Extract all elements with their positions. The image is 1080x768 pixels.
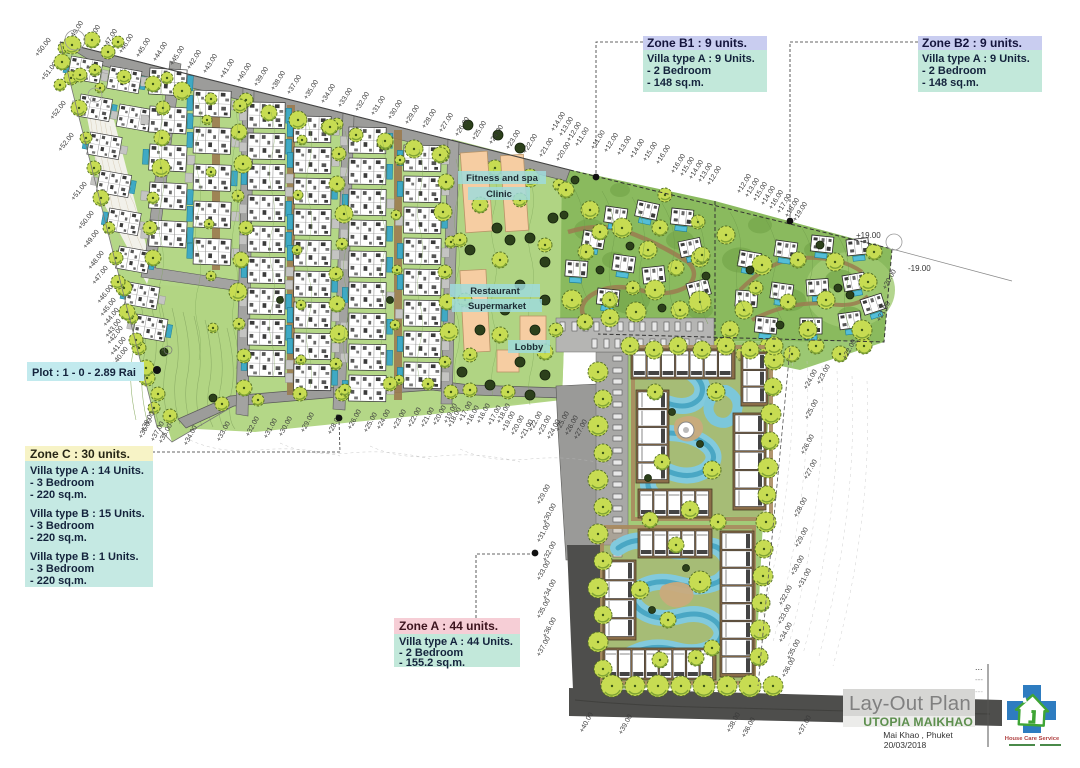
svg-text:- 220 sq.m.: - 220 sq.m. — [30, 489, 87, 501]
svg-text:- 148 sq.m.: - 148 sq.m. — [647, 77, 704, 89]
svg-text:Villa type A : 9 Units.: Villa type A : 9 Units. — [922, 53, 1030, 65]
svg-text:- 2 Bedroom: - 2 Bedroom — [647, 65, 711, 77]
svg-text:UTOPIA MAIKHAO: UTOPIA MAIKHAO — [863, 715, 973, 729]
svg-text:-19.00: -19.00 — [908, 264, 931, 273]
svg-text:- 3 Bedroom: - 3 Bedroom — [30, 477, 94, 489]
svg-text:Villa type B : 1 Units.: Villa type B : 1 Units. — [30, 551, 139, 563]
svg-text:Zone A : 44 units.: Zone A : 44 units. — [399, 619, 498, 633]
svg-text:- 3 Bedroom: - 3 Bedroom — [30, 520, 94, 532]
svg-text:Villa type B : 15 Units.: Villa type B : 15 Units. — [30, 508, 145, 520]
svg-text:Fitness and spa: Fitness and spa — [466, 173, 539, 184]
svg-text:Plot : 1 - 0 - 2.89 Rai: Plot : 1 - 0 - 2.89 Rai — [32, 367, 136, 379]
svg-text:Restaurant: Restaurant — [470, 286, 520, 297]
svg-text:- 148 sq.m.: - 148 sq.m. — [922, 77, 979, 89]
svg-text:Supermarket: Supermarket — [468, 301, 527, 312]
svg-text:Lobby: Lobby — [515, 342, 544, 353]
svg-text:- 155.2 sq.m.: - 155.2 sq.m. — [399, 657, 465, 669]
svg-text:- 220 sq.m.: - 220 sq.m. — [30, 532, 87, 544]
svg-text:- 220 sq.m.: - 220 sq.m. — [30, 575, 87, 587]
svg-text:Zone B2 : 9 units.: Zone B2 : 9 units. — [922, 36, 1022, 50]
svg-text:House Care Service: House Care Service — [1005, 736, 1060, 742]
svg-text:Clinic: Clinic — [486, 189, 512, 200]
svg-text:...: ... — [975, 662, 983, 672]
svg-text:- 3 Bedroom: - 3 Bedroom — [30, 563, 94, 575]
svg-text:---: --- — [975, 675, 983, 684]
svg-text:Villa type A : 14 Units.: Villa type A : 14 Units. — [30, 465, 144, 477]
svg-text:+19.00: +19.00 — [856, 231, 881, 240]
svg-text:Zone C : 30 units.: Zone C : 30 units. — [30, 447, 130, 461]
svg-text:- 2 Bedroom: - 2 Bedroom — [922, 65, 986, 77]
svg-text:---: --- — [975, 687, 983, 696]
svg-text:20/03/2018: 20/03/2018 — [884, 740, 927, 750]
svg-text:Mai Khao , Phuket: Mai Khao , Phuket — [883, 730, 953, 740]
svg-text:Zone B1 : 9 units.: Zone B1 : 9 units. — [647, 36, 747, 50]
svg-text:Villa type A : 9 Units.: Villa type A : 9 Units. — [647, 53, 755, 65]
svg-text:Lay-Out Plan: Lay-Out Plan — [849, 692, 971, 715]
